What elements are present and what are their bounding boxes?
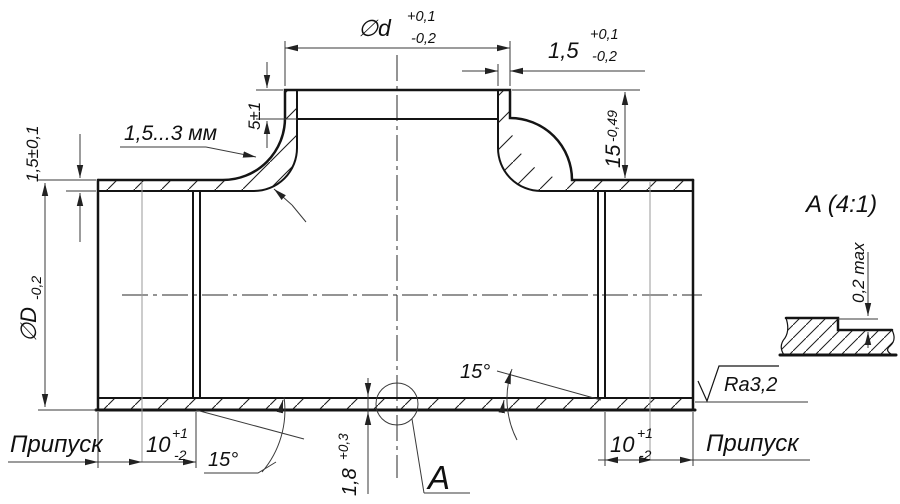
left-taper-construction-line: [196, 410, 304, 439]
bottom-wall-tol-plus: +0,3: [336, 433, 351, 460]
roughness-value: Ra3,2: [724, 374, 777, 396]
allowance-cut-lines: [142, 182, 650, 462]
right-taper-angle-value: 15°: [460, 361, 490, 383]
branch-dia-tol-plus: +0,1: [407, 9, 436, 25]
section-bottom-wall: [98, 398, 693, 410]
branch-wall-tol-minus: -0,2: [592, 49, 617, 65]
tee-fitting-drawing: ∅d +0,1 -0,2 1,5 +0,1 -0,2 5±1 1,5...3 м…: [0, 0, 900, 504]
main-dia-value: ∅D: [16, 307, 41, 342]
left-end-length-value: 10: [146, 432, 171, 457]
right-end-length-tol-plus: +1: [637, 425, 653, 441]
main-dia-tol-minus: -0,2: [28, 276, 44, 300]
branch-dia-value: ∅d: [358, 15, 392, 41]
main-wall-value: 1,5±0,1: [23, 125, 42, 182]
left-allowance-label: Припуск: [10, 431, 104, 458]
right-end-length-value: 10: [610, 432, 635, 457]
fillet-note-arrow-outer: [206, 147, 256, 157]
main-wall-extension-lines: [38, 180, 96, 191]
detail-view-title: A (4:1): [804, 191, 877, 218]
right-allowance-label: Припуск: [706, 430, 800, 457]
branch-height-value: 15: [602, 144, 625, 168]
left-taper-angle-value: 15°: [208, 449, 238, 471]
technical-drawing-sheet: ∅d +0,1 -0,2 1,5 +0,1 -0,2 5±1 1,5...3 м…: [0, 0, 900, 504]
left-end-length-tol-plus: +1: [172, 425, 188, 441]
branch-wall-tol-plus: +0,1: [590, 27, 619, 43]
section-top-right-wall: [498, 90, 693, 191]
branch-wall-value: 1,5: [548, 38, 579, 63]
bottom-wall-value: 1,8: [339, 468, 361, 496]
detail-marker-label: A: [426, 459, 450, 496]
branch-height-tol-minus: -0,49: [604, 110, 620, 142]
fillet-note-arrow-inner: [274, 189, 292, 205]
right-taper-construction-line: [497, 371, 601, 400]
fillet-note-text: 1,5...3 мм: [124, 122, 217, 145]
right-taper-arrow-top: [508, 371, 511, 382]
left-end-length-tol-minus: -2: [174, 447, 187, 463]
branch-dia-tol-minus: -0,2: [411, 31, 436, 47]
detail-step-value: 0,2 max: [849, 242, 868, 303]
recess-depth-value: 5±1: [245, 102, 264, 130]
right-end-length-tol-minus: -2: [639, 447, 652, 463]
